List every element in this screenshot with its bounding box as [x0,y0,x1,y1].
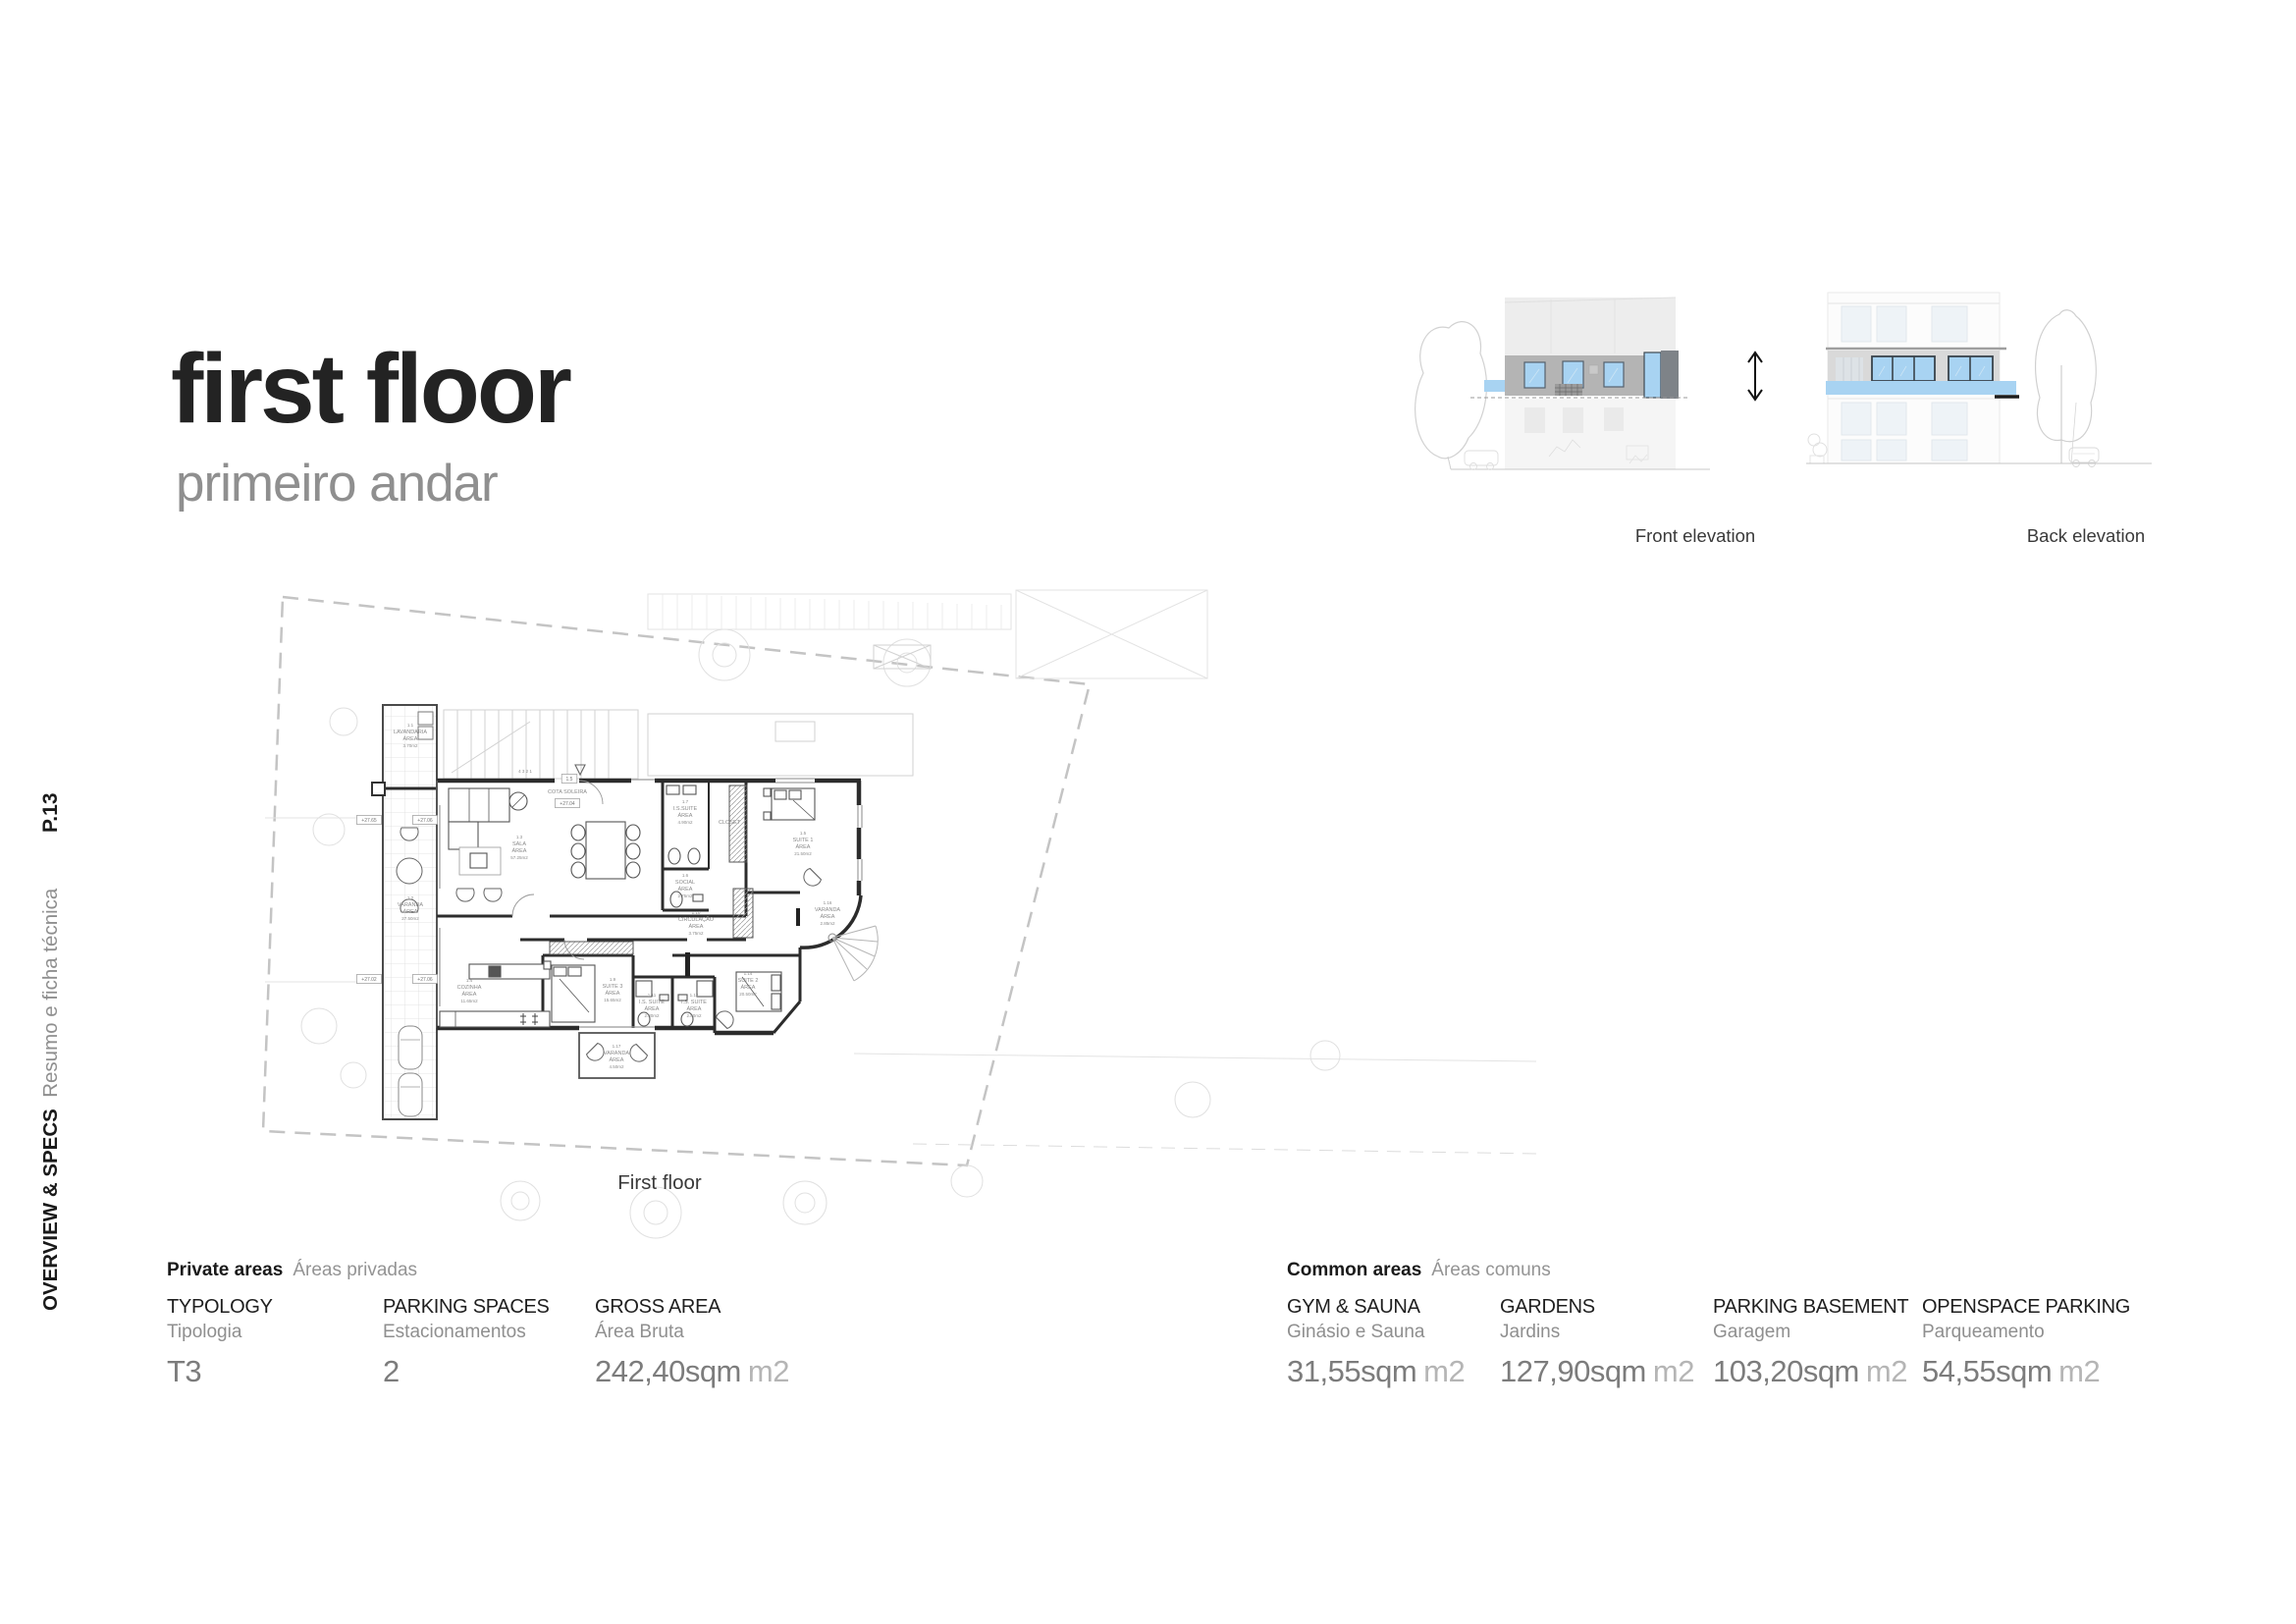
private-areas-header: Private areasÁreas privadas [167,1260,417,1282]
svg-text:+27.06: +27.06 [417,977,433,983]
section-label-en: OVERVIEW & SPECS [39,1109,62,1311]
front-elevation-label: Front elevation [1635,525,1755,546]
svg-text:4.50m2: 4.50m2 [609,1064,624,1069]
svg-text:ÁREA: ÁREA [462,991,477,998]
svg-text:I.S. SUITE: I.S. SUITE [639,1000,665,1005]
tree-sketch [2036,310,2097,442]
plan-caption: First floor [617,1171,702,1194]
svg-text:+27.02: +27.02 [361,977,377,983]
svg-text:4.90m2: 4.90m2 [677,820,693,825]
svg-text:3.75m2: 3.75m2 [688,931,704,936]
back-elevation-label: Back elevation [2027,525,2145,546]
svg-text:I.S. SUITE: I.S. SUITE [681,1000,707,1005]
svg-text:CIRCULAÇÃO: CIRCULAÇÃO [678,916,715,923]
svg-text:1.10: 1.10 [692,910,701,915]
svg-text:1.5: 1.5 [566,777,573,783]
svg-text:1.11: 1.11 [648,993,657,998]
svg-text:1.9: 1.9 [610,977,616,982]
svg-text:1.1: 1.1 [407,723,414,728]
svg-text:SUITE 1: SUITE 1 [793,838,814,843]
svg-text:1.12: 1.12 [690,993,699,998]
svg-text:+27.04: +27.04 [560,801,575,807]
svg-text:SUITE 3: SUITE 3 [603,984,623,990]
svg-text:57.25m2: 57.25m2 [510,855,528,860]
spec-gym-sauna: GYM & SAUNA Ginásio e Sauna 31,55sqmm2 [1287,1296,1465,1389]
svg-text:ÁREA: ÁREA [678,886,693,893]
page-subtitle: primeiro andar [176,458,498,510]
svg-text:VARANDA: VARANDA [398,902,424,908]
svg-text:2.75m2: 2.75m2 [677,893,693,898]
section-label-pt: Resumo e ficha técnica [39,889,62,1104]
updown-arrow-icon [1748,352,1762,400]
svg-text:SOCIAL: SOCIAL [675,880,695,886]
svg-text:VARANDA: VARANDA [604,1051,630,1056]
elevation-drawings: Front elevation [1394,255,2169,555]
svg-text:4 3 2 1: 4 3 2 1 [518,769,532,774]
svg-text:SALA: SALA [512,841,526,847]
svg-text:20.50m2: 20.50m2 [739,992,757,997]
svg-text:ÁREA: ÁREA [796,843,811,850]
svg-text:ÁREA: ÁREA [403,908,418,915]
svg-text:ÁREA: ÁREA [821,913,835,920]
car-sketch [2069,448,2099,462]
spec-openspace-parking: OPENSPACE PARKING Parqueamento 54,55sqmm… [1922,1296,2130,1389]
svg-text:27.50m2: 27.50m2 [401,916,419,921]
back-window-group [1872,356,1935,381]
svg-text:+27.65: +27.65 [361,818,377,824]
svg-text:ÁREA: ÁREA [610,1056,624,1063]
svg-text:I.S.SUITE: I.S.SUITE [673,806,698,812]
site-sketch [265,590,1536,1154]
svg-text:+27.06: +27.06 [417,818,433,824]
spec-gross-area: GROSS AREA Área Bruta 242,40sqmm2 [595,1296,789,1389]
back-elevation-drawing: Back elevation [1806,293,2152,546]
svg-text:1.5: 1.5 [800,831,807,836]
furniture [440,765,822,1029]
front-balcony-band [1484,380,1505,392]
svg-text:1.6: 1.6 [682,873,689,878]
section-label: OVERVIEW & SPECS Resumo e ficha técnica [39,889,63,1311]
back-balcony-band [1826,381,2016,395]
svg-text:ÁREA: ÁREA [645,1005,660,1012]
spec-gardens: GARDENS Jardins 127,90sqmm2 [1500,1296,1694,1389]
svg-text:11.65m2: 11.65m2 [460,999,478,1003]
svg-text:2.80m2: 2.80m2 [644,1013,660,1018]
tree-sketch [1415,322,1487,459]
svg-text:VARANDA: VARANDA [815,907,841,913]
svg-text:ÁREA: ÁREA [689,923,704,930]
front-dark-panel [1661,351,1679,399]
page-number: P.13 [39,782,63,833]
svg-text:1.2: 1.2 [407,895,414,900]
svg-text:3.70m2: 3.70m2 [402,743,418,748]
spec-parking-basement: PARKING BASEMENT Garagem 103,20sqmm2 [1713,1296,1908,1389]
svg-text:COTA SOLEIRA: COTA SOLEIRA [548,789,587,795]
svg-text:ÁREA: ÁREA [512,847,527,854]
svg-text:1.14: 1.14 [744,971,753,976]
svg-text:1.16: 1.16 [824,900,832,905]
spec-typology: TYPOLOGY Tipologia T3 [167,1296,273,1389]
svg-text:ÁREA: ÁREA [741,984,756,991]
svg-text:21.50m2: 21.50m2 [794,851,812,856]
page-title: first floor [171,340,569,438]
common-areas-header: Common areasÁreas comuns [1287,1260,1551,1282]
svg-text:CLOSET: CLOSET [719,820,741,826]
svg-text:ÁREA: ÁREA [403,735,418,742]
svg-text:1.4: 1.4 [466,978,473,983]
svg-text:1.17: 1.17 [613,1044,621,1049]
svg-text:2.85m2: 2.85m2 [820,921,835,926]
svg-text:SUITE 2: SUITE 2 [738,978,759,984]
svg-text:1.7: 1.7 [682,799,689,804]
stairwell-sketch [444,645,931,779]
svg-text:ÁREA: ÁREA [606,990,620,997]
svg-text:ÁREA: ÁREA [678,812,693,819]
svg-text:LAVANDARIA: LAVANDARIA [394,730,427,735]
svg-text:15.65m2: 15.65m2 [604,998,621,1002]
svg-text:COZINHA: COZINHA [457,985,482,991]
svg-text:ÁREA: ÁREA [687,1005,702,1012]
svg-text:2.80m2: 2.80m2 [686,1013,702,1018]
front-tall-window [1644,352,1661,398]
floor-plan-drawing: 1.1LAVANDARIAÁREA3.70m21.2VARANDAÁREA27.… [226,565,1541,1252]
spec-parking-spaces: PARKING SPACES Estacionamentos 2 [383,1296,550,1389]
exterior-stair [828,926,878,981]
svg-text:1.3: 1.3 [516,835,523,839]
front-elevation-drawing: Front elevation [1415,298,1756,546]
